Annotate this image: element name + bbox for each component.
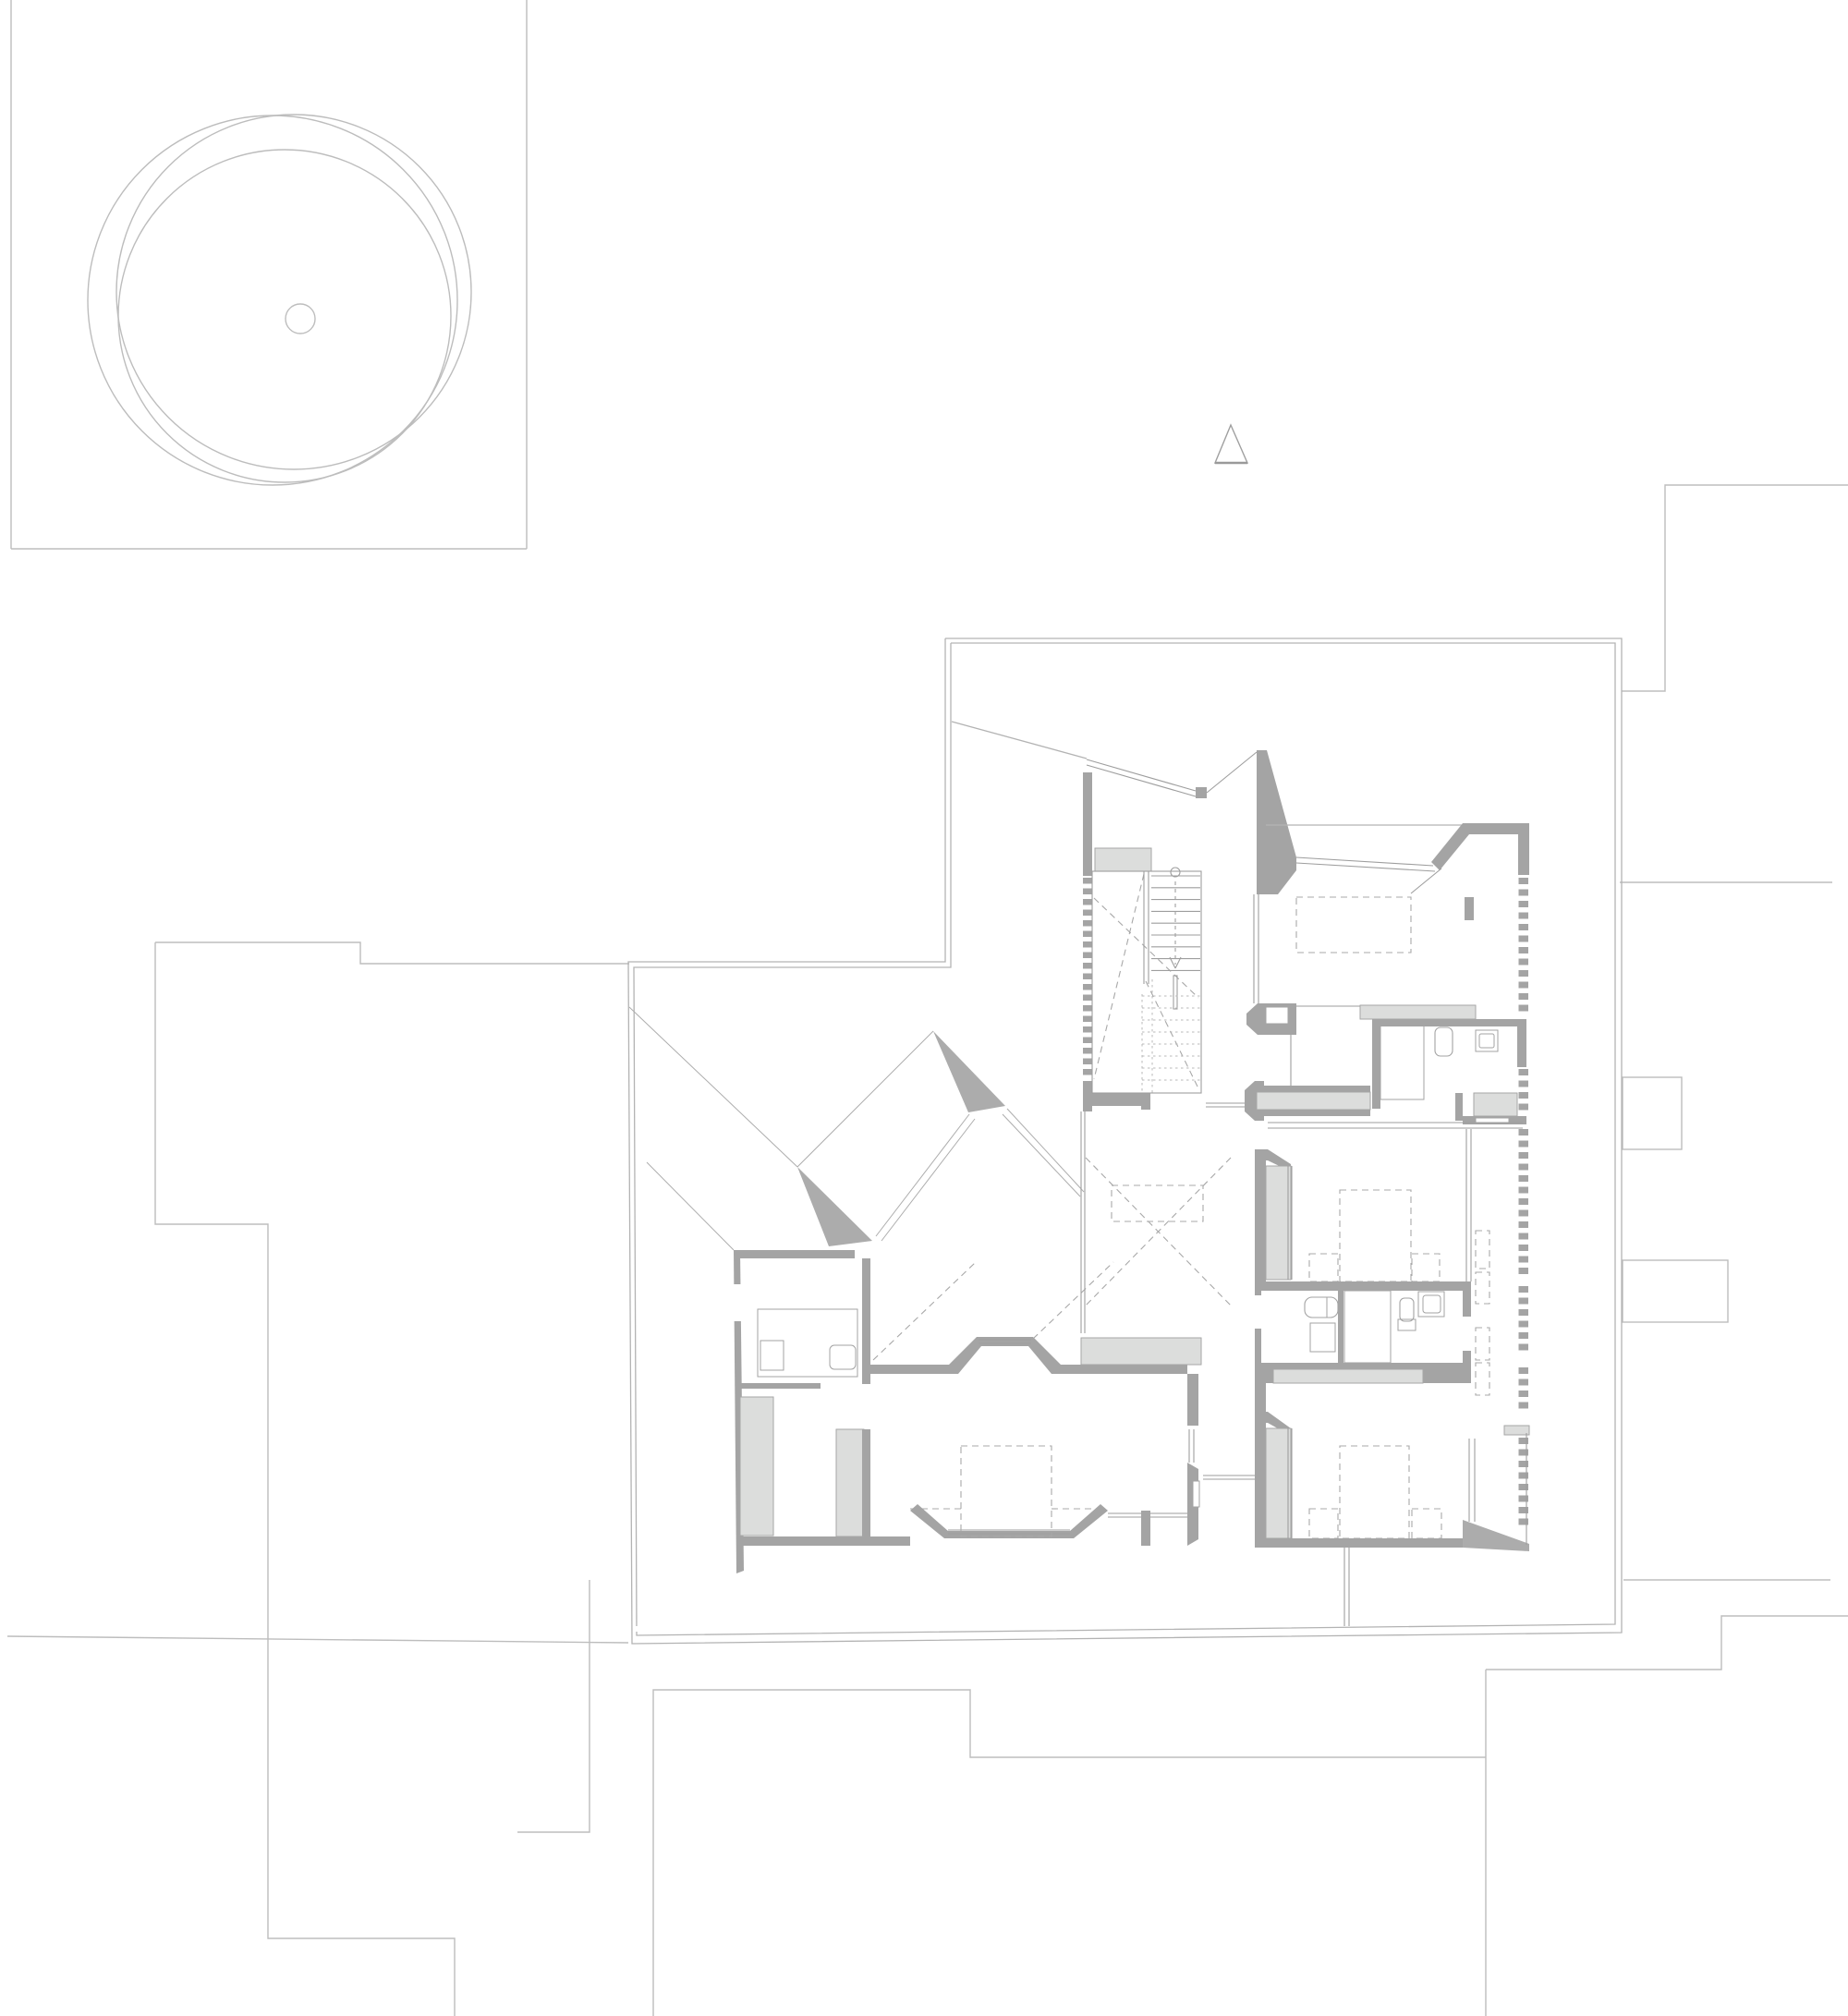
site-neighbor-south	[653, 1690, 1486, 2016]
facade-east-slats	[1519, 1164, 1529, 1171]
niche-south-wall	[1257, 1110, 1370, 1116]
site-line-west-step	[155, 942, 629, 964]
bedroom2-nightstand-dashed	[1309, 1254, 1338, 1281]
stair-to-master-line	[1207, 752, 1257, 793]
facade-east-slats	[1519, 1005, 1529, 1012]
master-east-wall-top	[1518, 823, 1529, 875]
facade-east-slats	[1519, 1379, 1529, 1386]
facade-east-slats	[1519, 1175, 1529, 1182]
office-north-wall	[734, 1250, 855, 1258]
facade-east-slats	[1519, 1221, 1529, 1228]
stair-west-wall-slats	[1083, 889, 1092, 895]
stair-west-wall-slats	[1083, 1048, 1092, 1054]
roof-glazing-line	[876, 1114, 969, 1236]
stair-glazing-line	[1087, 765, 1196, 796]
niche-floor	[1257, 1092, 1370, 1110]
stair-dashed-slope	[1094, 874, 1144, 1079]
roof-valley-line	[1003, 1114, 1080, 1196]
bedroom3-south-wall	[1255, 1538, 1467, 1548]
stair-west-wall-slats	[1083, 878, 1092, 884]
facade-east-slats	[1519, 1129, 1529, 1136]
shutter-dashed	[1476, 1272, 1489, 1304]
bath1-sink-basin	[1479, 1034, 1494, 1048]
office-wardrobe	[740, 1397, 773, 1536]
bedroom2-bay-fill	[1266, 1166, 1291, 1280]
facade-east-slats	[1519, 901, 1529, 907]
void-dashed-x	[1086, 1158, 1231, 1306]
roof-wedge-north	[933, 1031, 1005, 1112]
facade-east-slats	[1519, 1092, 1529, 1099]
facade-east-slats	[1519, 982, 1529, 989]
site-neighbor-northeast	[1622, 485, 1848, 691]
drawing-layers	[7, 0, 1848, 2016]
stair-west-wall	[1083, 772, 1092, 876]
loggia1-west-jamb	[1455, 1093, 1463, 1121]
bath1-toilet	[1435, 1027, 1453, 1056]
site-neighbor-east-box-2	[1623, 1260, 1728, 1322]
stair-arrow-bar	[1173, 976, 1177, 1009]
facade-east-slats	[1519, 1081, 1529, 1087]
roof-ridge	[797, 1031, 933, 1167]
stair-west-wall-slats	[1083, 1038, 1092, 1044]
bedroom3-wardrobe	[1273, 1369, 1423, 1383]
bedroom2-bed-dashed	[1340, 1190, 1411, 1281]
facade-east-slats	[1519, 878, 1529, 884]
bath1-shower	[1380, 1026, 1424, 1099]
facade-east-slats	[1519, 1233, 1529, 1240]
stair-west-wall-slats	[1083, 931, 1092, 938]
facade-east-slats	[1519, 1367, 1529, 1374]
bath1-east-wall	[1517, 1019, 1526, 1067]
living-rug-dashed	[961, 1446, 1052, 1536]
bath2-toilet	[1305, 1297, 1338, 1318]
site-line-left-of-plan	[517, 1580, 590, 1832]
roof-edge-line	[952, 722, 1087, 759]
master-west-wall	[1257, 750, 1296, 894]
dormer-dashed-hip	[1033, 1262, 1113, 1339]
facade-east-slats	[1519, 959, 1529, 965]
stair-west-wall-slats	[1083, 984, 1092, 990]
office-divider-wall	[737, 1383, 821, 1389]
stair-glazing-line	[1087, 759, 1196, 791]
bedroom3-bed-dashed	[1340, 1446, 1409, 1538]
office-monitor	[760, 1341, 784, 1370]
stair-west-wall-slats	[1083, 910, 1092, 917]
roof-valley-line	[1007, 1109, 1084, 1192]
facade-east-slats	[1519, 936, 1529, 942]
facade-east-slats	[1519, 913, 1529, 919]
roof-glazing-line	[881, 1119, 975, 1241]
stair-west-wall-slats	[1083, 1016, 1092, 1023]
facade-east-slats	[1519, 1210, 1529, 1217]
office-west-window-gap	[733, 1284, 741, 1321]
stair-west-wall-slats	[1083, 1005, 1092, 1012]
facade-east-slats	[1519, 947, 1529, 953]
site-neighbor-east-box-1	[1623, 1077, 1682, 1149]
niche-north-wall	[1257, 1086, 1370, 1092]
bath-divider-north-wall	[1255, 1281, 1471, 1291]
plan-bottom-left-wall	[634, 1626, 691, 1632]
bath1-counter	[1360, 1005, 1476, 1019]
bedroom3-nightstand-dashed	[1412, 1509, 1441, 1538]
master-chamfer-wall	[1431, 823, 1529, 870]
master-west-pier-notch	[1266, 1007, 1288, 1024]
facade-east-slats	[1519, 1069, 1529, 1075]
office-chair	[830, 1345, 856, 1369]
dormer-dashed-hip	[873, 1262, 976, 1360]
living-east-wall-upper	[1187, 1374, 1198, 1426]
facade-east-slats	[1519, 1268, 1529, 1274]
bath3-east-window-gap	[1462, 1317, 1472, 1351]
facade-east-slats	[1519, 1245, 1529, 1251]
stair-west-wall-slats	[1083, 995, 1092, 1002]
plan-boundary-inner	[634, 643, 1615, 1635]
bath3-toilet	[1400, 1298, 1414, 1321]
office-closet-wall	[862, 1429, 870, 1536]
facade-east-slats	[1519, 1286, 1529, 1293]
stair-west-wall-slats	[1083, 920, 1092, 927]
stair-west-wall-slats	[1083, 899, 1092, 905]
living-south-wall-west	[737, 1536, 910, 1546]
bath2-basin	[1310, 1323, 1335, 1352]
facade-east-slats	[1519, 1321, 1529, 1328]
stair-bottom-wall	[1088, 1093, 1146, 1106]
facade-east-slats	[1519, 890, 1529, 896]
shutter-dashed	[1476, 1363, 1489, 1395]
stair-west-wall-slats	[1083, 1026, 1092, 1033]
stair-west-wall-slats	[1083, 953, 1092, 959]
roof-wedge-south	[797, 1167, 872, 1246]
bedroom3-nightstand-dashed	[1309, 1509, 1338, 1538]
loggia1-sill	[1476, 1118, 1509, 1123]
facade-east-slats	[1519, 1141, 1529, 1148]
facade-east-slats	[1519, 1403, 1529, 1409]
bath3-sink-basin	[1423, 1295, 1441, 1313]
facade-east-slats	[1519, 970, 1529, 977]
facade-east-slats	[1519, 993, 1529, 1000]
living-south-pier	[1141, 1511, 1150, 1546]
roof-hip-office	[647, 1162, 734, 1250]
stair-dashed-slope	[1146, 981, 1198, 1088]
master-ceiling-slope	[1411, 868, 1441, 893]
stair-west-wall-slats	[1083, 1059, 1092, 1065]
stair-west-wall-slats	[1083, 974, 1092, 980]
living-east-window-box	[1193, 1481, 1199, 1507]
site-neighbor-southeast-step	[1486, 1616, 1848, 1670]
loggia1-floor	[1474, 1093, 1517, 1116]
office-desk	[758, 1309, 857, 1377]
bath2-west-window-gap	[1253, 1295, 1263, 1329]
facade-east-slats	[1519, 1391, 1529, 1397]
stair-west-wall-slats	[1083, 941, 1092, 948]
facade-east-slats	[1519, 1257, 1529, 1263]
stair-west-wall-slats	[1083, 1069, 1092, 1075]
bedroom3-bay-fill	[1266, 1428, 1291, 1538]
loggia2-sill	[1504, 1426, 1529, 1435]
plan-boundary-outer	[628, 638, 1622, 1644]
kitchen-counter	[1081, 1338, 1201, 1365]
stair-glazing-endblock	[1196, 787, 1207, 798]
facade-east-slats	[1519, 1198, 1529, 1205]
bedroom3-west-wall	[1255, 1383, 1266, 1546]
tree-canopy-circle	[88, 115, 457, 485]
facade-east-slats	[1519, 1104, 1529, 1111]
bath1-west-wall	[1372, 1019, 1380, 1109]
roof-hip-northwest	[629, 1007, 797, 1167]
bath3-shower	[1344, 1291, 1391, 1363]
bedroom2-bay-wall	[1255, 1160, 1266, 1284]
master-chimney	[1465, 897, 1474, 920]
stair-landing-slab	[1095, 848, 1151, 871]
stair-newel-post	[1141, 1093, 1150, 1110]
bath-mid-divider	[1338, 1291, 1343, 1365]
facade-east-slats	[1519, 1309, 1529, 1316]
tree-trunk-circle	[286, 304, 315, 334]
facade-east-slats	[1519, 1344, 1529, 1351]
facade-east-slats	[1519, 924, 1529, 930]
floor-plan-drawing	[0, 0, 1848, 2016]
north-triangle-icon	[1215, 425, 1247, 463]
hall-island-dashed	[1112, 1185, 1203, 1221]
shutter-dashed	[1476, 1328, 1489, 1360]
facade-east-slats	[1519, 1152, 1529, 1159]
shutter-dashed	[1476, 1231, 1489, 1269]
master-bed-dashed	[1296, 897, 1411, 953]
facade-east-slats	[1519, 1332, 1529, 1339]
floor-plan-page	[0, 0, 1848, 2016]
facade-east-slats	[1519, 1187, 1529, 1194]
facade-east-slats	[1519, 1298, 1529, 1305]
bedroom2-nightstand-dashed	[1412, 1254, 1440, 1281]
stair-west-wall-slats	[1083, 963, 1092, 969]
site-line-southwest	[7, 1636, 628, 1643]
site-line-west-parcel	[155, 942, 455, 2016]
office-east-wall	[862, 1258, 870, 1384]
office-closet	[836, 1429, 864, 1536]
